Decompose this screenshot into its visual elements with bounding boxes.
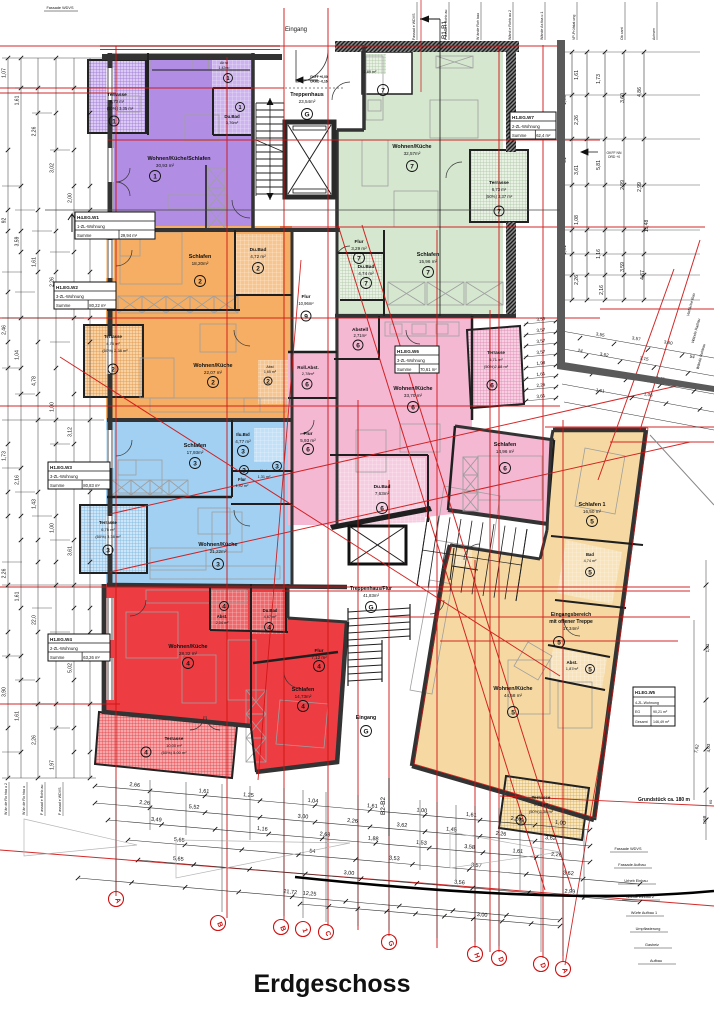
svg-text:3,90: 3,90 [2, 687, 8, 697]
svg-text:4: 4 [267, 624, 271, 631]
svg-text:6: 6 [411, 404, 415, 411]
svg-text:60: 60 [708, 799, 713, 804]
svg-text:Schlafen: Schlafen [417, 252, 439, 258]
svg-text:(50%)2,88 m²: (50%)2,88 m² [484, 364, 509, 369]
svg-text:H1.EG.W6: H1.EG.W6 [397, 349, 419, 354]
svg-text:3: 3 [193, 460, 197, 467]
svg-text:7,12 m²: 7,12 m² [311, 655, 327, 660]
svg-text:4,74 m²: 4,74 m² [584, 559, 598, 563]
svg-text:mit offener Treppe: mit offener Treppe [549, 619, 593, 625]
svg-text:3: 3 [241, 448, 245, 455]
svg-text:4,75 m²: 4,75 m² [106, 341, 120, 346]
svg-text:Du.Bad: Du.Bad [374, 484, 391, 490]
svg-text:6: 6 [503, 465, 507, 472]
svg-text:1: 1 [153, 173, 157, 180]
svg-text:F assad e WDVS: F assad e WDVS [58, 787, 62, 815]
svg-text:Terrasse: Terrasse [489, 180, 509, 186]
svg-text:1,88: 1,88 [368, 836, 379, 843]
svg-text:3,00: 3,00 [476, 912, 487, 919]
svg-text:1,61: 1,61 [536, 371, 546, 377]
svg-text:Summe: Summe [512, 133, 527, 138]
svg-text:7: 7 [497, 208, 501, 215]
svg-text:70,61 m²: 70,61 m² [420, 367, 437, 372]
svg-text:Wände Einbau 2: Wände Einbau 2 [626, 895, 654, 899]
svg-text:(50%) 3,38 m²: (50%) 3,38 m² [95, 534, 121, 539]
svg-text:Flur: Flur [301, 294, 310, 300]
svg-text:2,04 m²: 2,04 m² [216, 621, 230, 625]
svg-text:1,61: 1,61 [574, 70, 580, 80]
svg-text:2: 2 [266, 378, 270, 385]
svg-text:Abst: Abst [266, 365, 273, 369]
svg-text:Summe: Summe [397, 367, 412, 372]
svg-text:5,02: 5,02 [68, 663, 74, 673]
svg-text:2,26: 2,26 [574, 115, 580, 125]
svg-text:23,54m²: 23,54m² [299, 99, 316, 104]
svg-text:1,04: 1,04 [15, 350, 21, 360]
svg-text:6: 6 [356, 342, 360, 349]
svg-text:Schlafen 1: Schlafen 1 [579, 502, 606, 508]
svg-text:Gesamt: Gesamt [635, 720, 648, 724]
svg-text:1,61: 1,61 [15, 711, 21, 721]
svg-text:Eingang: Eingang [356, 715, 376, 721]
svg-text:1,61: 1,61 [512, 848, 523, 855]
svg-text:1,43: 1,43 [32, 499, 38, 509]
svg-text:17,34m²: 17,34m² [563, 626, 580, 631]
svg-text:21,72: 21,72 [283, 889, 297, 896]
svg-text:Ab st: Ab st [220, 61, 228, 65]
svg-text:G: G [368, 605, 373, 612]
svg-text:7: 7 [357, 255, 361, 262]
svg-text:4: 4 [317, 663, 321, 670]
svg-text:Wohnen/Küche: Wohnen/Küche [493, 686, 532, 692]
svg-text:EG: EG [635, 710, 640, 714]
svg-text:Du.Bad: Du.Bad [224, 114, 240, 119]
svg-text:ORD +0: ORD +0 [608, 155, 620, 159]
svg-text:Fassad e WDVS: Fassad e WDVS [412, 13, 416, 40]
svg-text:3,62: 3,62 [563, 870, 574, 877]
svg-text:1,00: 1,00 [555, 820, 566, 827]
svg-text:14,96 m²: 14,96 m² [496, 449, 515, 454]
svg-text:1,65 m²: 1,65 m² [264, 370, 277, 374]
svg-text:5: 5 [519, 817, 523, 824]
svg-text:6,73 m²: 6,73 m² [492, 187, 507, 192]
svg-text:H1.EG.W2: H1.EG.W2 [56, 285, 78, 290]
svg-text:Eingang: Eingang [285, 27, 307, 33]
svg-text:Treppenhaus/Flur: Treppenhaus/Flur [350, 586, 392, 592]
svg-text:Fassade Aufbau: Fassade Aufbau [618, 863, 645, 867]
svg-text:3: 3 [106, 547, 110, 554]
svg-text:Du.Bad: Du.Bad [358, 264, 375, 270]
svg-text:3: 3 [242, 467, 246, 474]
svg-text:30,93 m²: 30,93 m² [156, 163, 175, 168]
svg-text:2,26: 2,26 [347, 818, 358, 825]
svg-text:3,62: 3,62 [396, 822, 407, 829]
svg-text:G: G [363, 729, 368, 736]
svg-text:80,83 m²: 80,83 m² [83, 483, 100, 488]
svg-text:3,57: 3,57 [536, 327, 546, 333]
svg-text:1: 1 [238, 105, 241, 111]
svg-text:Abst.: Abst. [259, 468, 268, 473]
svg-text:1,16: 1,16 [596, 249, 602, 259]
svg-text:2,26: 2,26 [32, 735, 38, 745]
svg-text:Wohnen/Küche: Wohnen/Küche [393, 386, 432, 392]
svg-text:2-ZL-Wohnung: 2-ZL-Wohnung [50, 646, 79, 651]
svg-text:G: G [304, 112, 309, 119]
svg-text:Gasheiz: Gasheiz [645, 943, 659, 947]
svg-text:Würfe Aufbau 1: Würfe Aufbau 1 [631, 911, 657, 915]
svg-text:3,00: 3,00 [343, 870, 354, 877]
svg-text:6: 6 [306, 446, 310, 453]
svg-text:2,26: 2,26 [2, 568, 8, 578]
svg-text:Urheb Einbau: Urheb Einbau [624, 879, 647, 883]
svg-text:7: 7 [364, 280, 368, 287]
svg-text:17,93m²: 17,93m² [187, 450, 204, 455]
svg-text:H1.EG.W3: H1.EG.W3 [50, 465, 72, 470]
svg-text:2-ZL-Wohnung: 2-ZL-Wohnung [512, 124, 541, 129]
svg-text:Terrasse: Terrasse [165, 736, 184, 741]
svg-text:1,61: 1,61 [367, 803, 378, 810]
svg-text:1,61: 1,61 [15, 591, 21, 601]
svg-text:3-ZL-Wohnung: 3-ZL-Wohnung [56, 294, 85, 299]
svg-text:1,08: 1,08 [574, 215, 580, 225]
svg-text:5,81: 5,81 [596, 160, 602, 170]
svg-text:2,99: 2,99 [620, 180, 626, 190]
svg-text:Fassade WDVS: Fassade WDVS [614, 847, 641, 851]
svg-text:3,29 m²: 3,29 m² [351, 246, 367, 251]
svg-text:3,60: 3,60 [620, 93, 626, 103]
svg-text:Wohnen/Küche: Wohnen/Küche [193, 363, 232, 369]
svg-text:Schlafen: Schlafen [494, 442, 516, 448]
svg-text:3,55: 3,55 [536, 316, 546, 322]
svg-text:1,61: 1,61 [15, 95, 21, 105]
svg-text:Aufbau: Aufbau [650, 959, 662, 963]
svg-text:1,61: 1,61 [198, 788, 209, 795]
svg-text:6,75 m²: 6,75 m² [534, 802, 548, 807]
svg-text:1-ZL-Wohnung: 1-ZL-Wohnung [77, 224, 106, 229]
svg-text:2,16: 2,16 [599, 285, 605, 295]
svg-text:4,67: 4,67 [640, 270, 646, 280]
svg-text:1,97: 1,97 [50, 760, 56, 770]
svg-text:Flur: Flur [354, 239, 363, 245]
svg-text:4-ZL-Wohnung: 4-ZL-Wohnung [635, 701, 659, 705]
svg-text:3-ZL-Wohnung: 3-ZL-Wohnung [50, 474, 79, 479]
svg-text:Wohnen/Küche/Schlafen: Wohnen/Küche/Schlafen [147, 156, 210, 162]
svg-text:Terrasse: Terrasse [487, 350, 506, 355]
svg-text:H1.EG.W4: H1.EG.W4 [50, 637, 72, 642]
svg-text:Flur: Flur [238, 477, 246, 482]
svg-text:Schlafen: Schlafen [184, 443, 206, 449]
svg-text:W än de Ro hba u 2: W än de Ro hba u 2 [4, 783, 8, 815]
svg-text:22,07 m²: 22,07 m² [204, 370, 223, 375]
svg-text:Ilu.Bıd: Ilu.Bıd [236, 432, 250, 437]
svg-text:6: 6 [490, 382, 494, 389]
svg-text:Flur: Flur [314, 648, 323, 654]
svg-text:92: 92 [2, 218, 8, 224]
svg-text:Wänd e Rohb au 2: Wänd e Rohb au 2 [508, 10, 512, 40]
svg-text:1,73: 1,73 [596, 74, 602, 84]
svg-text:Terrasse: Terrasse [104, 334, 123, 339]
svg-text:OKFF +0,00: OKFF +0,00 [310, 75, 328, 79]
svg-text:Flur: Flur [303, 431, 312, 437]
svg-text:4,74 m²: 4,74 m² [358, 271, 374, 276]
svg-text:Abst.: Abst. [567, 660, 578, 665]
svg-text:(50%) 5,00 m²: (50%) 5,00 m² [161, 750, 187, 755]
svg-text:2: 2 [111, 366, 115, 373]
svg-text:5,52: 5,52 [188, 804, 199, 811]
svg-text:2,00: 2,00 [68, 193, 74, 203]
svg-text:1,58: 1,58 [702, 815, 707, 824]
svg-text:Du.Bad: Du.Bad [250, 247, 267, 253]
svg-text:2,78m²: 2,78m² [302, 371, 315, 376]
svg-text:4: 4 [222, 603, 226, 610]
svg-text:Wohnen/Küche: Wohnen/Küche [198, 542, 237, 548]
svg-text:2,99: 2,99 [637, 182, 643, 192]
svg-text:Terrasse: Terrasse [107, 92, 127, 98]
svg-text:33,70 m²: 33,70 m² [404, 393, 423, 398]
svg-text:Schlafen: Schlafen [292, 687, 314, 693]
svg-text:4,86: 4,86 [637, 87, 643, 97]
svg-text:2,89 m²: 2,89 m² [364, 70, 378, 74]
svg-text:(50%) 2,38 m²: (50%) 2,38 m² [102, 348, 128, 353]
svg-text:2,26: 2,26 [495, 831, 506, 838]
svg-text:1: 1 [112, 118, 116, 125]
svg-text:Erdgeschoss: Erdgeschoss [253, 970, 410, 998]
svg-text:1,04: 1,04 [307, 798, 318, 805]
svg-text:5,93 m²: 5,93 m² [300, 438, 316, 443]
svg-text:W än de Ro hba u: W än de Ro hba u [22, 786, 26, 815]
svg-text:4,67 m²: 4,67 m² [264, 615, 278, 619]
svg-text:3,58: 3,58 [464, 844, 475, 851]
svg-text:22,0: 22,0 [32, 615, 38, 625]
svg-text:3,02: 3,02 [50, 163, 56, 173]
svg-text:14,73m²: 14,73m² [295, 694, 312, 699]
svg-text:7: 7 [381, 87, 385, 94]
svg-text:Summe: Summe [77, 233, 92, 238]
svg-text:Achsen: Achsen [652, 28, 656, 40]
svg-text:1,92 m²: 1,92 m² [236, 484, 250, 488]
svg-text:4,03: 4,03 [706, 743, 711, 752]
svg-text:3,49: 3,49 [151, 817, 162, 824]
svg-text:2,26: 2,26 [139, 800, 150, 807]
svg-text:Treppenhaus: Treppenhaus [290, 92, 324, 98]
svg-text:1,87m²: 1,87m² [566, 666, 579, 671]
svg-text:OKRD -0,16: OKRD -0,16 [310, 80, 328, 84]
svg-text:Terrasse: Terrasse [532, 795, 551, 800]
svg-text:(50%) 3,35 m²: (50%) 3,35 m² [107, 106, 134, 111]
svg-text:80,22 m²: 80,22 m² [89, 303, 106, 308]
svg-text:1,42m²: 1,42m² [219, 66, 231, 70]
svg-text:2,26: 2,26 [574, 275, 580, 285]
svg-text:1,73: 1,73 [2, 451, 8, 461]
svg-text:4: 4 [186, 660, 190, 667]
svg-text:4,72 m²: 4,72 m² [250, 254, 266, 259]
svg-text:5,65: 5,65 [173, 856, 184, 863]
svg-text:Roll.Abst.: Roll.Abst. [297, 365, 318, 370]
svg-text:Summe: Summe [50, 483, 65, 488]
svg-text:15,96 m²: 15,96 m² [419, 259, 438, 264]
svg-text:6: 6 [380, 505, 384, 512]
svg-text:1: 1 [226, 76, 229, 82]
svg-text:4,78: 4,78 [32, 376, 38, 386]
svg-text:3,61: 3,61 [574, 165, 580, 175]
svg-text:W ände Roh bau: W ände Roh bau [476, 13, 480, 40]
svg-text:2,26: 2,26 [536, 382, 546, 388]
svg-text:18,20m²: 18,20m² [192, 261, 209, 266]
svg-text:Bad: Bad [586, 552, 594, 557]
svg-text:Fassade WDVS: Fassade WDVS [46, 6, 73, 10]
svg-text:5: 5 [588, 666, 592, 673]
svg-text:16,50 m²: 16,50 m² [583, 509, 602, 514]
svg-text:2: 2 [211, 379, 215, 386]
svg-text:5: 5 [557, 639, 561, 646]
svg-text:H1.EG.W5: H1.EG.W5 [635, 690, 656, 695]
svg-text:VP-Prüfstat ung: VP-Prüfstat ung [572, 15, 576, 40]
svg-text:15,48: 15,48 [644, 220, 650, 233]
svg-text:1,00: 1,00 [416, 808, 427, 815]
svg-text:Wohnen/Küche: Wohnen/Küche [168, 644, 207, 650]
svg-text:Eingangsbereich: Eingangsbereich [551, 612, 591, 618]
svg-text:3,56: 3,56 [454, 879, 465, 886]
svg-text:1,98: 1,98 [536, 360, 546, 366]
svg-text:(50%)3,38 m²: (50%)3,38 m² [529, 809, 554, 814]
svg-text:5: 5 [588, 569, 592, 576]
svg-text:F assad e Rohb au: F assad e Rohb au [444, 10, 448, 40]
svg-text:1,00: 1,00 [50, 402, 56, 412]
svg-text:H4.EG.W1: H4.EG.W1 [77, 215, 99, 220]
svg-text:Ob cant: Ob cant [620, 27, 624, 40]
svg-text:54: 54 [309, 849, 316, 856]
svg-text:3,61: 3,61 [68, 546, 74, 556]
svg-text:Summe: Summe [56, 303, 71, 308]
svg-text:62,4 m²: 62,4 m² [536, 133, 551, 138]
svg-text:Wohnen/Küche: Wohnen/Küche [392, 144, 431, 150]
svg-text:28,32 m²: 28,32 m² [179, 651, 198, 656]
svg-text:3,76m²: 3,76m² [226, 120, 239, 125]
svg-text:63,26 m²: 63,26 m² [83, 655, 100, 660]
svg-text:1,31 m²: 1,31 m² [258, 475, 272, 479]
svg-text:2,68: 2,68 [319, 831, 330, 838]
svg-text:3,59: 3,59 [620, 262, 626, 272]
svg-text:7: 7 [426, 269, 430, 276]
svg-text:1,61: 1,61 [32, 257, 38, 267]
svg-text:10,96m²: 10,96m² [298, 301, 314, 306]
svg-text:29,94 m²: 29,94 m² [121, 233, 138, 238]
svg-text:Du.Bad: Du.Bad [263, 608, 278, 613]
svg-text:6: 6 [305, 381, 309, 388]
svg-text:1,53: 1,53 [416, 840, 427, 847]
svg-text:B2-B2: B2-B2 [380, 797, 387, 815]
svg-text:Umpflasterung: Umpflasterung [636, 927, 661, 931]
svg-text:(50%) 3,37 m²: (50%) 3,37 m² [486, 194, 513, 199]
svg-text:3-ZL-Wohnung: 3-ZL-Wohnung [397, 358, 426, 363]
svg-text:Grundstück ca. 180 m: Grundstück ca. 180 m [638, 797, 691, 803]
svg-text:5: 5 [511, 709, 515, 716]
svg-text:5,71 m²: 5,71 m² [489, 357, 503, 362]
svg-text:10,00 m²: 10,00 m² [166, 743, 182, 748]
svg-text:90,21 m²: 90,21 m² [653, 710, 668, 714]
svg-text:1,00: 1,00 [50, 523, 56, 533]
svg-text:3,57: 3,57 [536, 349, 546, 355]
svg-text:2,16: 2,16 [15, 475, 21, 485]
svg-text:3,57: 3,57 [536, 338, 546, 344]
svg-text:5: 5 [590, 518, 594, 525]
svg-text:3,12: 3,12 [68, 427, 74, 437]
svg-text:2,46: 2,46 [2, 325, 8, 335]
svg-text:32,57m²: 32,57m² [404, 151, 421, 156]
svg-text:2: 2 [256, 265, 260, 272]
svg-text:2,26: 2,26 [32, 126, 38, 136]
svg-text:7,63m²: 7,63m² [375, 491, 390, 496]
svg-text:1,16: 1,16 [257, 826, 268, 833]
svg-text:3,61: 3,61 [536, 393, 546, 399]
svg-text:H1.EG.W7: H1.EG.W7 [512, 115, 534, 120]
svg-text:9: 9 [304, 313, 308, 320]
svg-text:41,83m²: 41,83m² [363, 593, 380, 598]
svg-text:6,75 m²: 6,75 m² [101, 527, 115, 532]
svg-text:44,58 m²: 44,58 m² [504, 693, 523, 698]
svg-text:12,25: 12,25 [302, 891, 316, 898]
svg-text:3: 3 [275, 463, 279, 470]
svg-text:3,62: 3,62 [545, 835, 556, 842]
svg-text:21,22m²: 21,22m² [210, 549, 227, 554]
svg-text:2,71m²: 2,71m² [353, 333, 367, 338]
svg-text:1,07: 1,07 [2, 68, 8, 78]
svg-text:4,77 m²: 4,77 m² [235, 439, 251, 444]
svg-text:Summe: Summe [50, 655, 65, 660]
svg-text:Wände As tba u 1: Wände As tba u 1 [540, 12, 544, 40]
svg-text:7: 7 [410, 163, 414, 170]
svg-text:2,66: 2,66 [129, 782, 140, 789]
svg-text:F assad e Rohb au: F assad e Rohb au [40, 785, 44, 815]
svg-text:1,25: 1,25 [243, 792, 254, 799]
svg-text:Schlafen: Schlafen [189, 254, 211, 260]
svg-text:2: 2 [198, 278, 202, 285]
svg-text:3: 3 [216, 561, 220, 568]
svg-text:Abst.: Abst. [217, 614, 227, 619]
svg-text:4: 4 [301, 703, 305, 710]
svg-text:3,53: 3,53 [389, 855, 400, 862]
svg-text:Terrasse: Terrasse [99, 520, 118, 525]
svg-text:1,61: 1,61 [705, 643, 710, 652]
svg-text:3,59: 3,59 [15, 236, 21, 246]
svg-text:4: 4 [144, 749, 148, 756]
svg-text:146,49 m²: 146,49 m² [653, 720, 670, 724]
svg-text:6,70 m²: 6,70 m² [110, 99, 125, 104]
